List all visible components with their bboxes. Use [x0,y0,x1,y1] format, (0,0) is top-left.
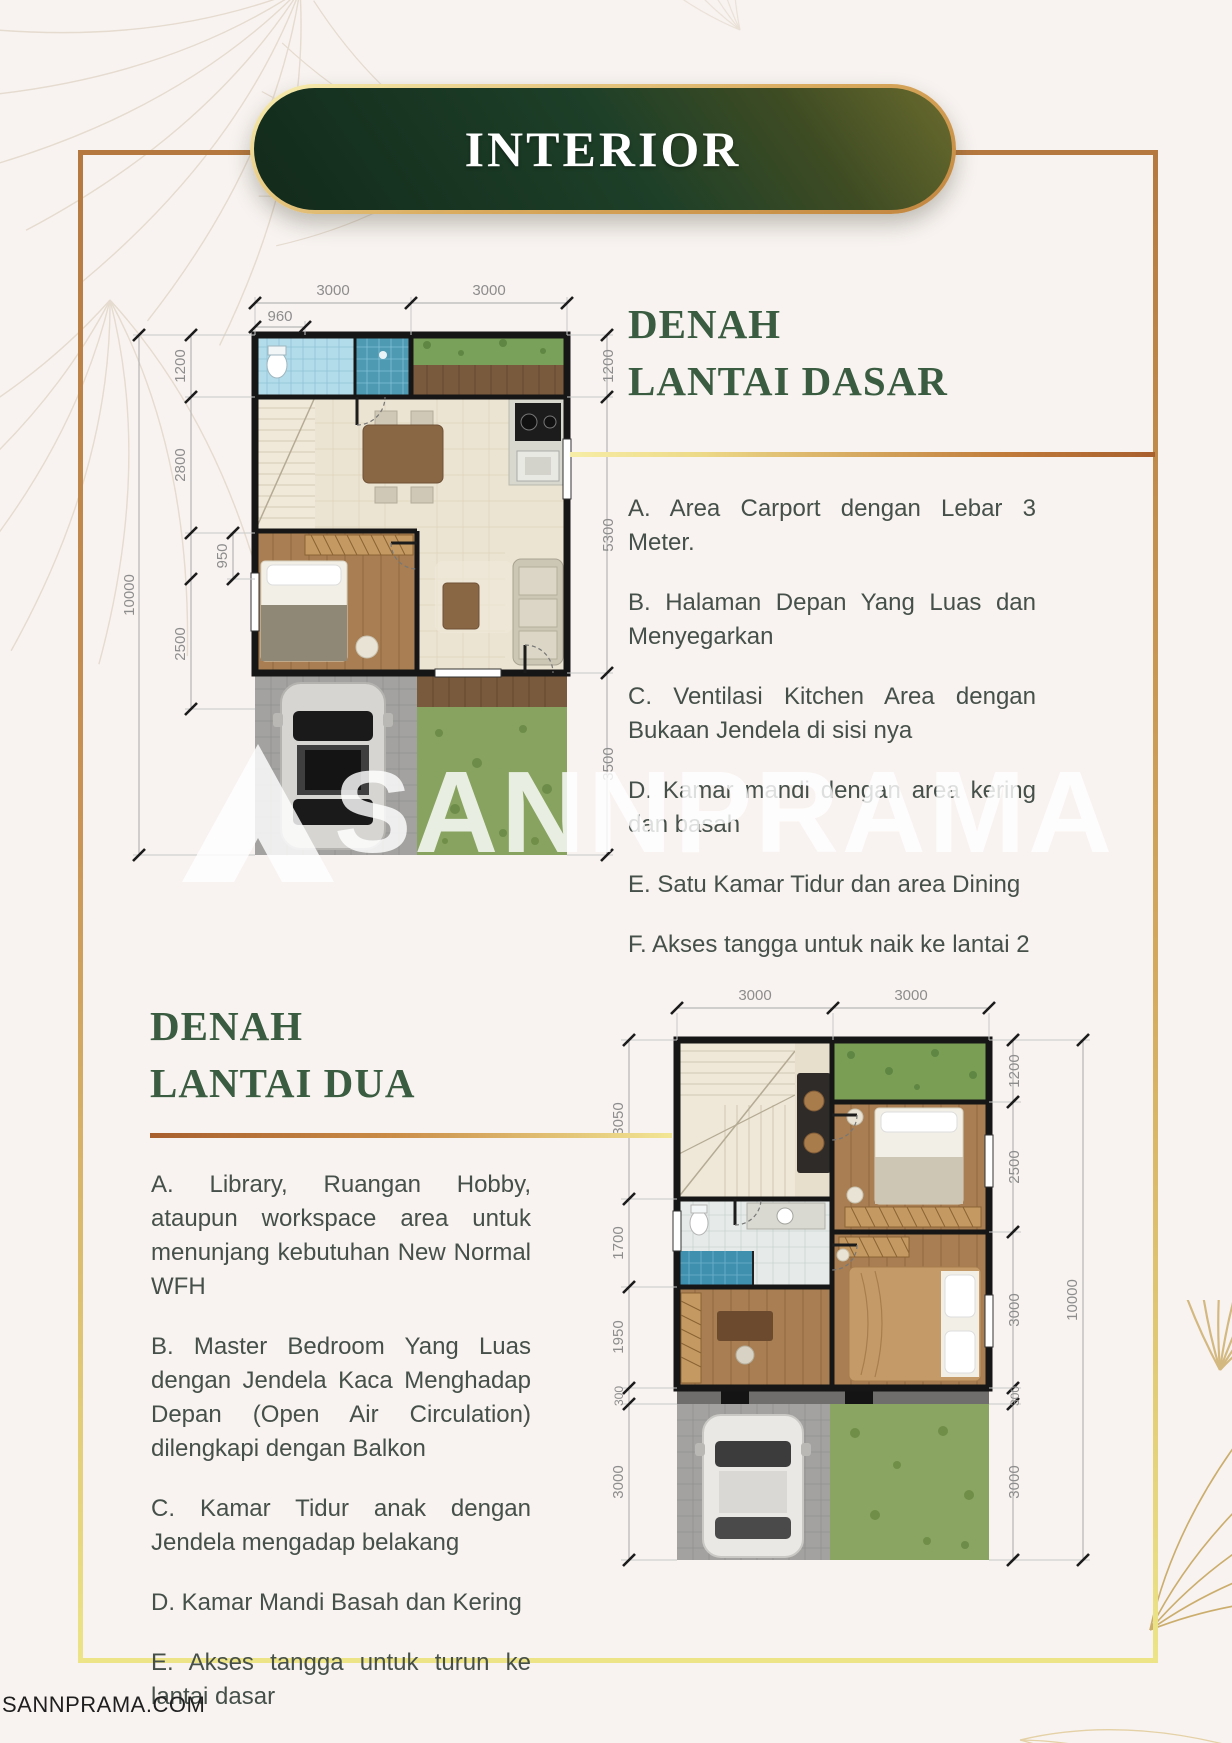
dim-label: 1950 [610,1320,627,1353]
library-area [677,1287,832,1388]
footer-site-url: SANNPRAMA.COM [2,1692,205,1718]
car-top-view [273,683,393,849]
frame-line-top-left [78,150,262,155]
dim-label: 3000 [894,987,927,1004]
ground-heading-line2: LANTAI DASAR [628,353,948,410]
dim-label: 2500 [172,627,189,660]
dim-label: 3000 [1006,1465,1023,1498]
upper-heading-rule [150,1133,672,1138]
dim-label: 10000 [1064,1279,1081,1321]
master-bedroom-area [833,1232,989,1388]
brochure-page: INTERIOR [0,0,1232,1743]
list-item: B. Master Bedroom Yang Luas dengan Jende… [151,1330,531,1466]
carport-area [255,673,417,855]
dim-label: 1200 [1006,1054,1023,1087]
car-top-view [695,1415,811,1557]
ground-floor-rooms [255,335,567,855]
upper-planter-area [833,1040,989,1102]
frame-line-right [1153,150,1158,1663]
title-banner-inner: INTERIOR [254,88,952,210]
list-item: F. Akses tangga untuk naik ke lantai 2 [628,928,1036,962]
list-item: D. Kamar Mandi Basah dan Kering [151,1586,531,1620]
upper-bathroom-area [677,1199,832,1287]
list-item: A. Area Carport dengan Lebar 3 Meter. [628,492,1036,560]
list-item: E. Satu Kamar Tidur dan area Dining [628,868,1036,902]
upper-stairs-area [677,1040,795,1199]
garden-area [417,673,567,855]
dim-label: 3000 [738,987,771,1004]
list-item: D. Kamar mandi dengan area kering dan ba… [628,774,1036,842]
ground-section-heading: DENAH LANTAI DASAR [628,296,948,410]
bedroom2-area [833,1102,989,1232]
dim-label: 950 [214,543,231,568]
list-item: A. Library, Ruangan Hobby, ataupun works… [151,1168,531,1304]
dim-label: 3050 [610,1102,627,1135]
upper-section-heading: DENAH LANTAI DUA [150,998,416,1112]
dim-label: 3000 [316,282,349,299]
list-item: B. Halaman Depan Yang Luas dan Menyegark… [628,586,1036,654]
dim-label: 3000 [610,1465,627,1498]
list-item: C. Ventilasi Kitchen Area dengan Bukaan … [628,680,1036,748]
upper-heading-line2: LANTAI DUA [150,1055,416,1112]
upper-feature-list: A. Library, Ruangan Hobby, ataupun works… [151,1168,531,1740]
planter-area [411,335,567,397]
upper-garden-view [830,1404,989,1560]
vanity-area [795,1040,833,1199]
frame-line-top-right [948,150,1158,155]
stairs-area [255,397,315,531]
dim-label: 1700 [610,1226,627,1259]
dim-label: 300 [1008,1386,1022,1406]
page-title: INTERIOR [465,120,742,178]
upper-carport-view [677,1404,830,1560]
dim-label: 2800 [172,448,189,481]
frame-line-left [78,150,83,1663]
dim-label: 960 [267,308,292,325]
bathroom-area [255,335,355,397]
dim-label: 3000 [472,282,505,299]
floor-plan-ground: 3000 3000 960 10000 1200 2800 950 2500 1… [105,243,665,913]
shower-area [355,335,411,397]
dim-label: 5300 [600,518,617,551]
ground-heading-line1: DENAH [628,296,948,353]
dim-label: 3000 [1006,1293,1023,1326]
kitchen-area [509,399,567,485]
dim-label: 2500 [1006,1150,1023,1183]
list-item: E. Akses tangga untuk turun ke lantai da… [151,1646,531,1714]
dim-label: 1200 [172,349,189,382]
floor-plan-ground-drawing: 3000 3000 960 10000 1200 2800 950 2500 1… [105,243,665,913]
ground-feature-list: A. Area Carport dengan Lebar 3 Meter. B.… [628,492,1036,988]
dim-label: 300 [612,1386,626,1406]
list-item: C. Kamar Tidur anak dengan Jendela menga… [151,1492,531,1560]
floor-plan-upper-drawing: 3000 3000 3050 1700 1950 300 3000 1200 2… [545,955,1105,1655]
dim-label: 10000 [121,574,138,616]
floor-plan-upper: 3000 3000 3050 1700 1950 300 3000 1200 2… [545,955,1105,1655]
title-banner: INTERIOR [250,84,956,214]
dim-label: 3500 [600,747,617,780]
dim-label: 1200 [600,349,617,382]
upper-heading-line1: DENAH [150,998,416,1055]
ground-heading-rule [570,452,1155,457]
